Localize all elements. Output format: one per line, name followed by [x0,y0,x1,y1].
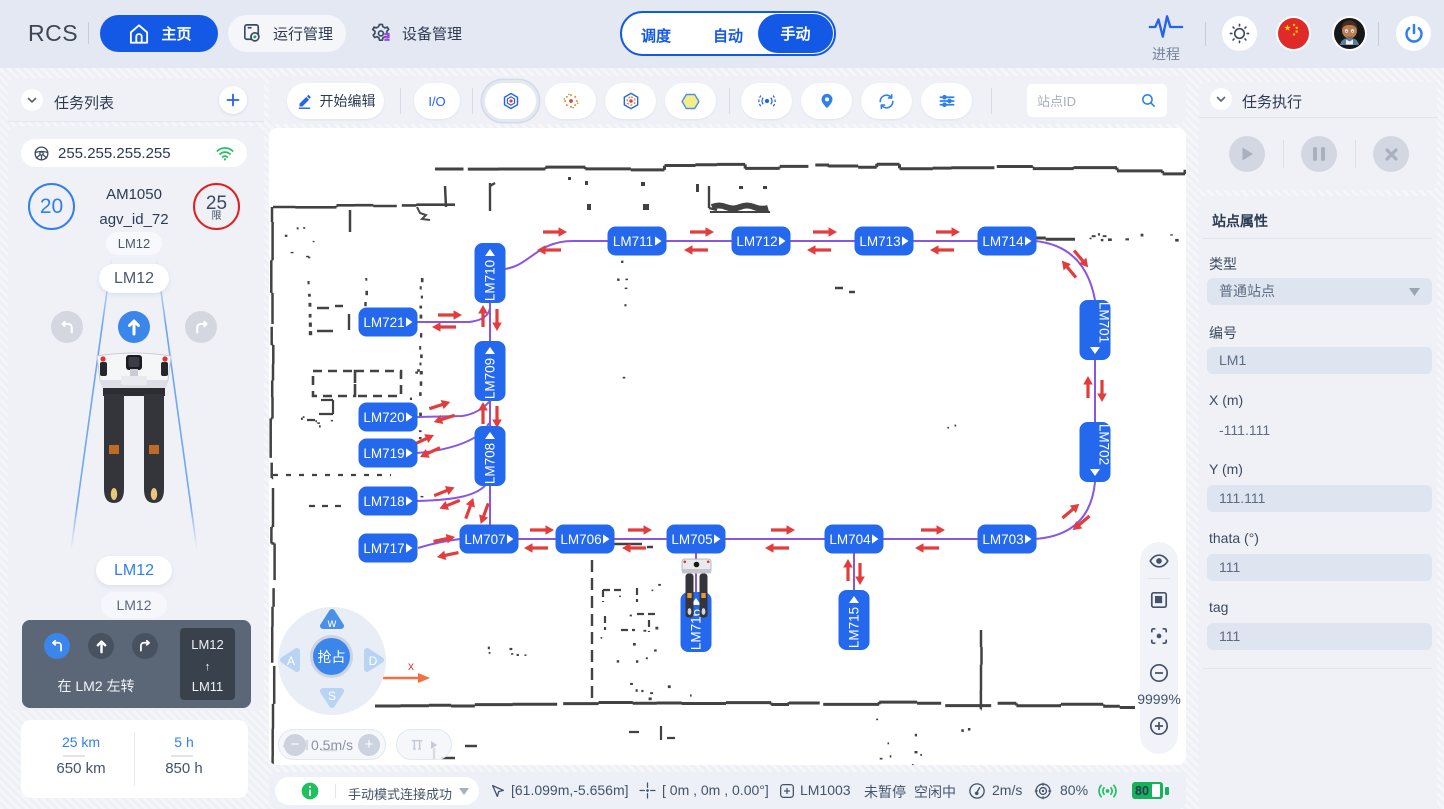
svg-text:LM712: LM712 [736,234,777,249]
svg-text:LM711: LM711 [613,234,653,249]
svg-text:w: w [327,616,337,630]
svg-text:LM703: LM703 [982,532,1023,547]
svg-text:x: x [408,662,414,673]
svg-text:LM708: LM708 [483,443,498,484]
svg-text:LM720: LM720 [363,410,404,425]
svg-text:LM718: LM718 [363,494,404,509]
svg-text:LM713: LM713 [859,234,900,249]
svg-text:LM721: LM721 [363,315,404,330]
svg-text:LM707: LM707 [464,532,505,547]
svg-text:LM704: LM704 [829,532,871,547]
svg-text:LM706: LM706 [560,532,601,547]
svg-text:LM705: LM705 [671,532,712,547]
svg-text:LM715: LM715 [847,607,862,648]
svg-text:LM719: LM719 [363,446,404,461]
svg-text:D: D [369,654,378,668]
svg-text:S: S [328,689,336,703]
svg-text:LM717: LM717 [363,541,404,556]
svg-text:LM702: LM702 [1097,424,1112,465]
svg-text:LM709: LM709 [483,358,498,399]
svg-text:LM710: LM710 [483,260,498,301]
svg-text:LM714: LM714 [982,234,1024,249]
svg-text:A: A [287,654,295,668]
svg-text:LM701: LM701 [1097,302,1112,343]
